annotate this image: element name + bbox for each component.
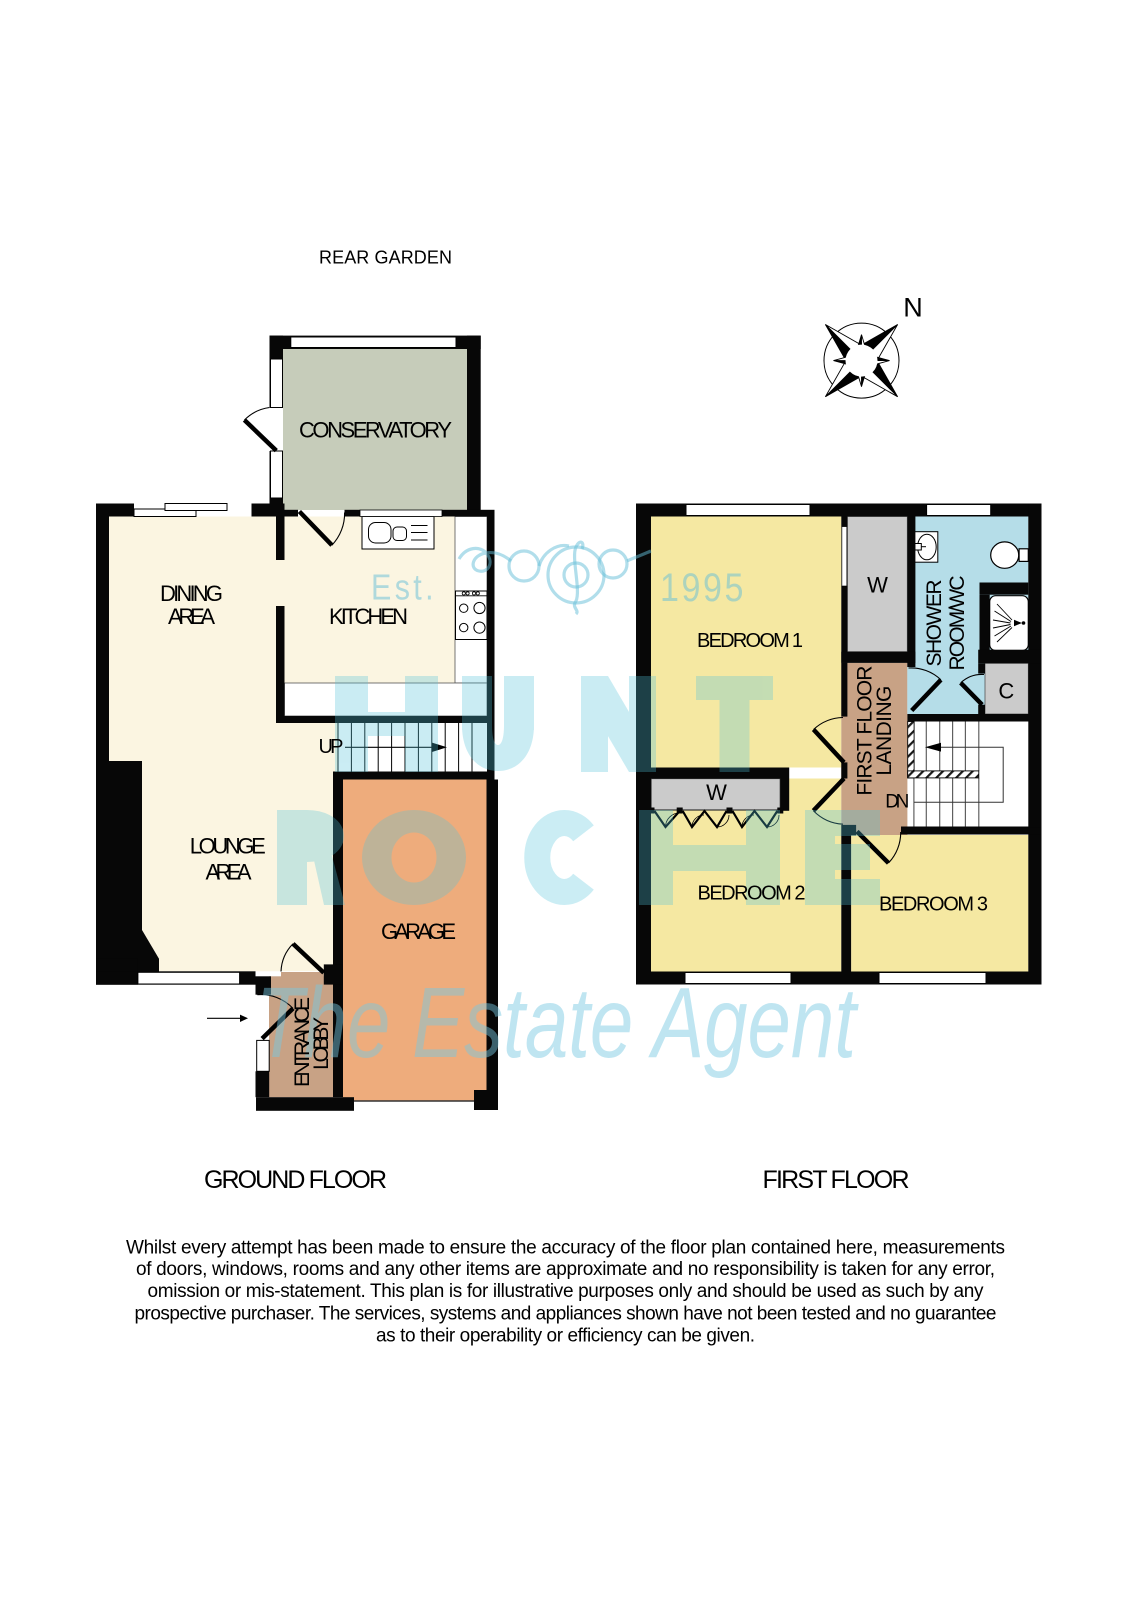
svg-text:Whilst every attempt has been: Whilst every attempt has been made to en… <box>126 1238 1005 1259</box>
svg-text:LOBBY: LOBBY <box>310 1017 333 1070</box>
svg-text:BEDROOM 1: BEDROOM 1 <box>697 630 803 652</box>
svg-text:BEDROOM 2: BEDROOM 2 <box>698 882 806 904</box>
svg-text:UP: UP <box>319 736 344 758</box>
svg-text:BEDROOM 3: BEDROOM 3 <box>879 894 988 916</box>
svg-text:GARAGE: GARAGE <box>381 919 456 944</box>
svg-text:CONSERVATORY: CONSERVATORY <box>299 418 452 443</box>
svg-text:of doors, windows, rooms and a: of doors, windows, rooms and any other i… <box>136 1259 995 1280</box>
svg-text:AREA: AREA <box>206 860 252 885</box>
svg-text:SHOWER: SHOWER <box>923 580 946 667</box>
svg-text:C: C <box>998 678 1014 703</box>
svg-text:LOUNGE: LOUNGE <box>190 834 266 859</box>
svg-text:omission or mis-statement. Thi: omission or mis-statement. This plan is … <box>148 1281 985 1302</box>
svg-text:REAR GARDEN: REAR GARDEN <box>319 247 452 267</box>
svg-text:AREA: AREA <box>168 604 215 629</box>
svg-text:KITCHEN: KITCHEN <box>329 604 408 629</box>
svg-text:N: N <box>903 293 923 323</box>
svg-text:FIRST FLOOR: FIRST FLOOR <box>763 1166 910 1194</box>
svg-text:LANDING: LANDING <box>873 686 896 776</box>
svg-text:DINING: DINING <box>160 581 223 606</box>
svg-text:ROOM/WC: ROOM/WC <box>946 576 969 671</box>
svg-text:Est.: Est. <box>371 567 437 608</box>
svg-text:as to their operability or eff: as to their operability or efficiency ca… <box>376 1326 755 1347</box>
svg-text:W: W <box>867 572 888 597</box>
svg-text:The Estate Agent: The Estate Agent <box>256 967 859 1079</box>
svg-text:prospective purchaser. The ser: prospective purchaser. The services, sys… <box>135 1303 997 1324</box>
svg-text:GROUND FLOOR: GROUND FLOOR <box>204 1166 387 1194</box>
svg-text:1995: 1995 <box>660 566 746 610</box>
svg-text:DN: DN <box>885 792 909 813</box>
svg-text:W: W <box>706 780 727 805</box>
